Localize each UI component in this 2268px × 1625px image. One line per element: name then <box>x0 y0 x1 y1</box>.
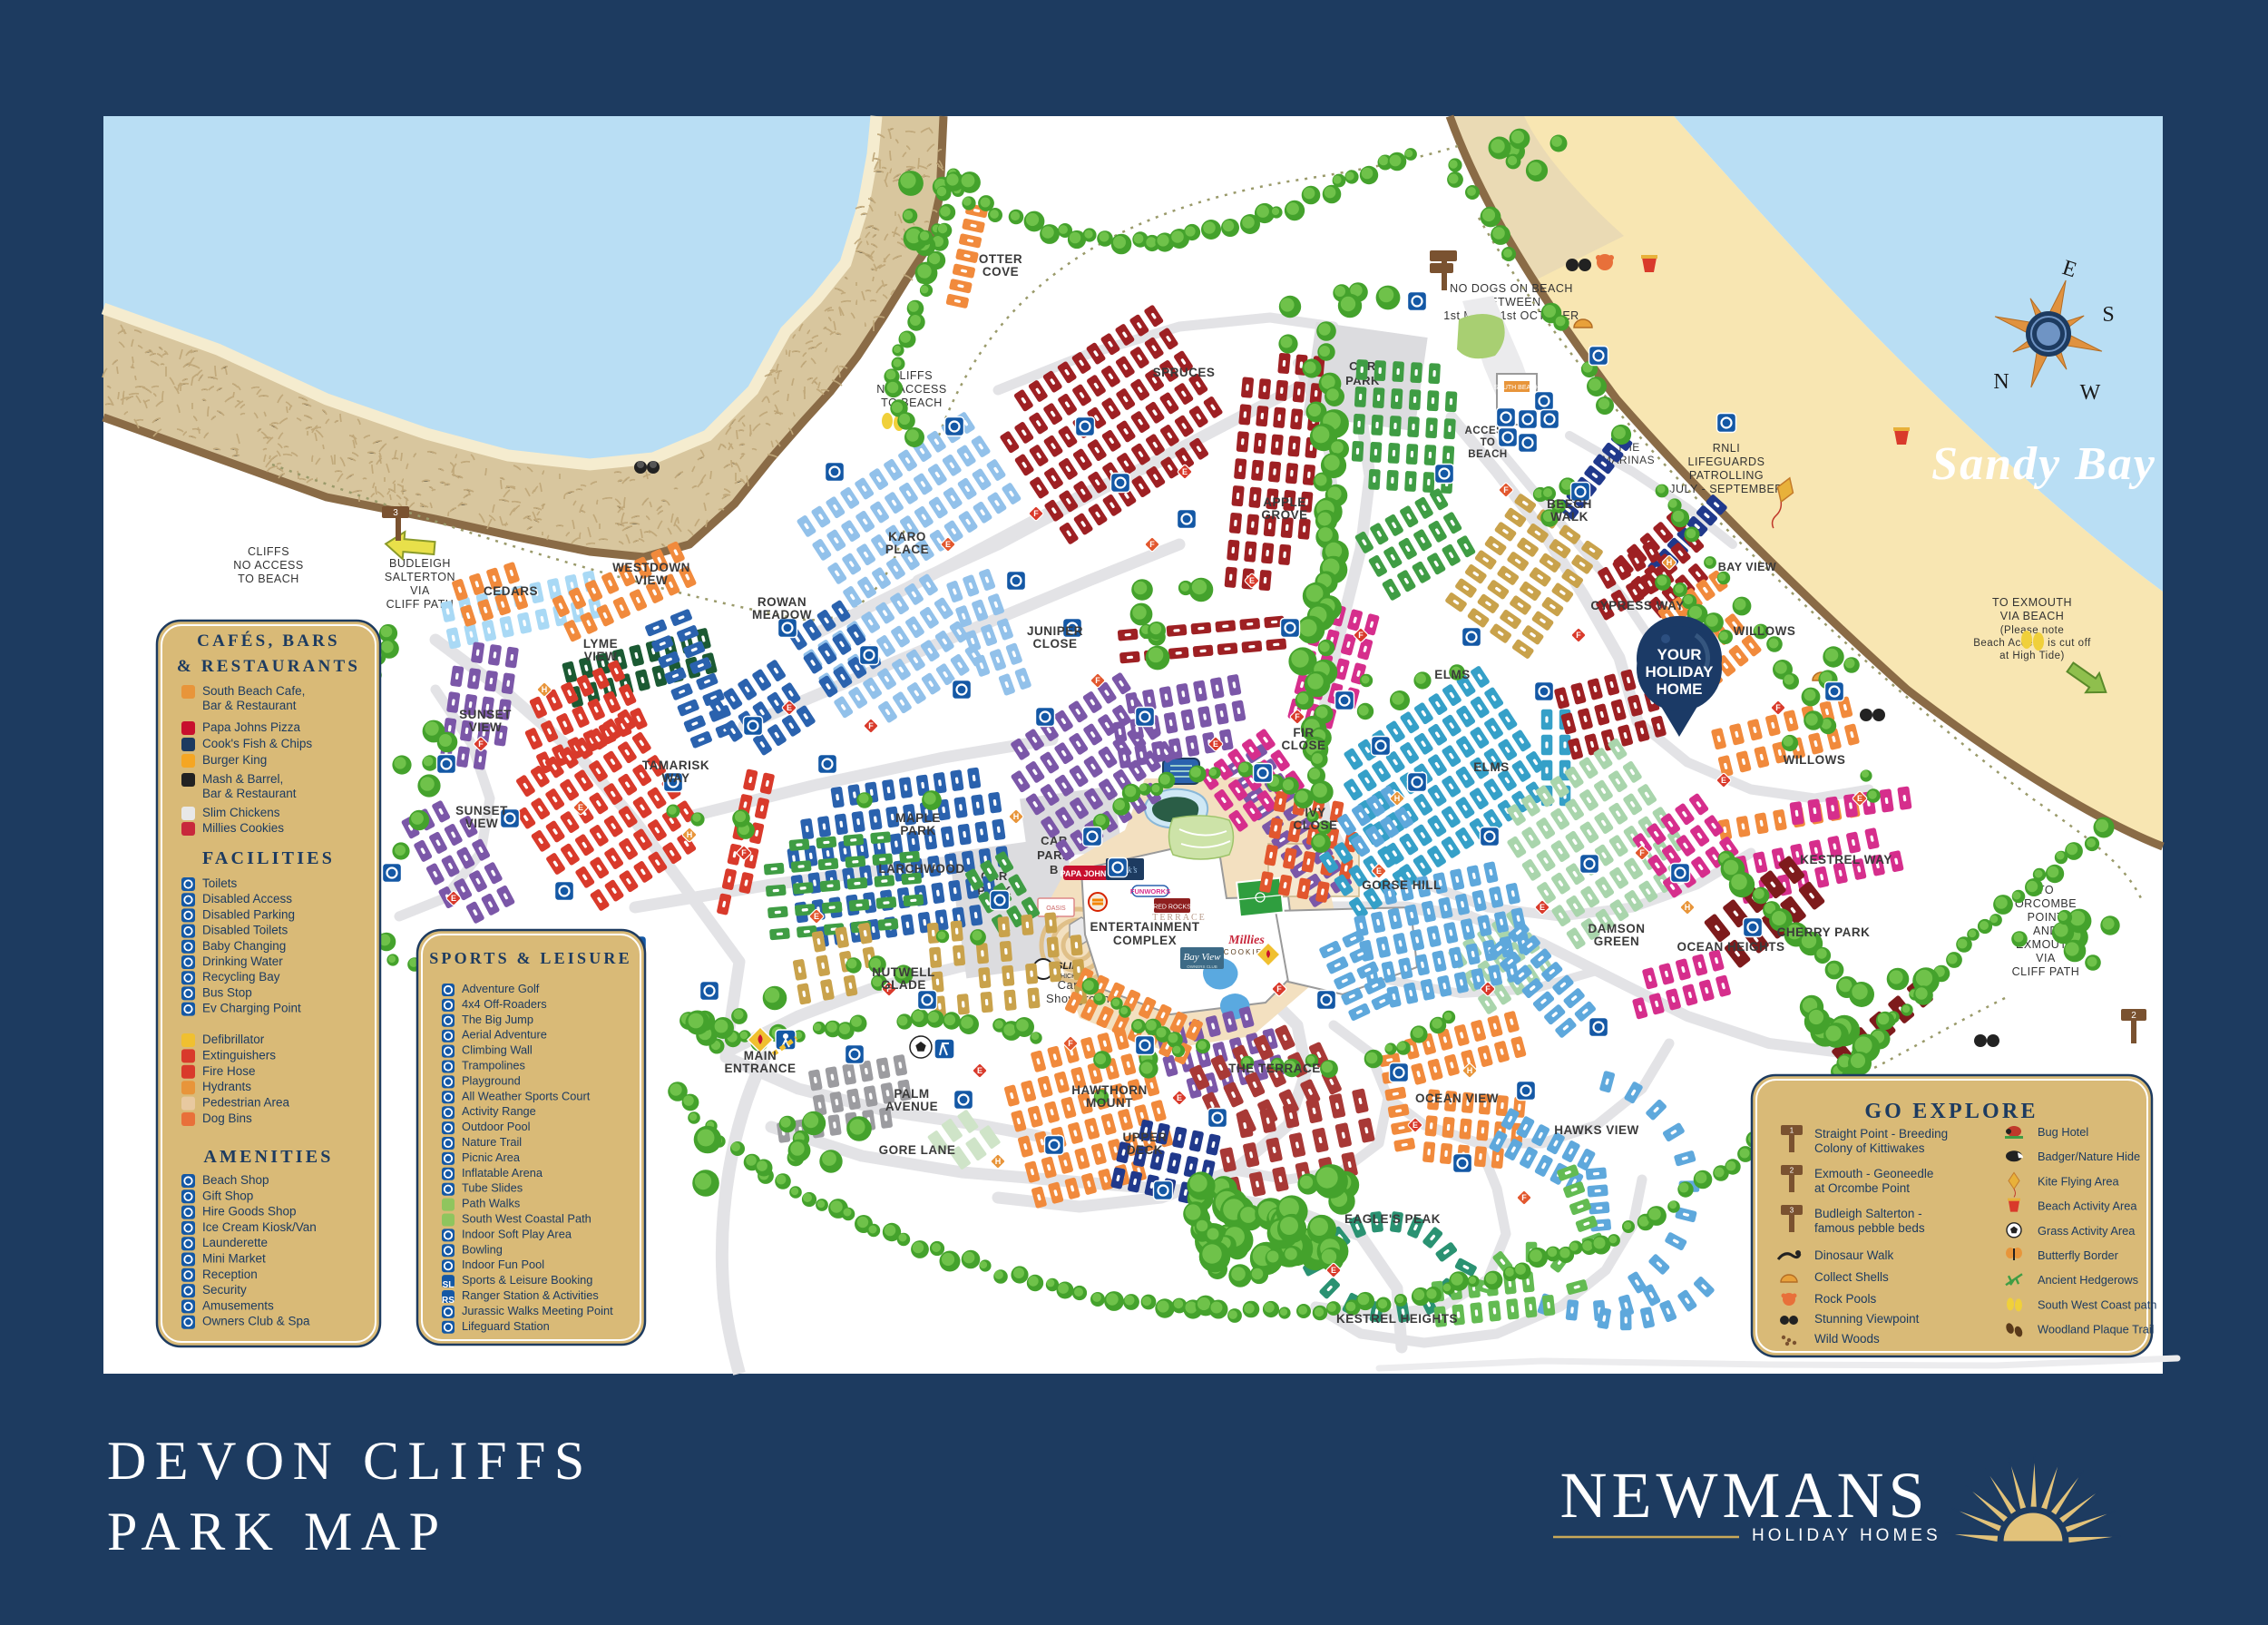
svg-text:at Orcombe Point: at Orcombe Point <box>1814 1181 1910 1195</box>
svg-text:Drinking Water: Drinking Water <box>202 954 283 968</box>
svg-text:Picnic Area: Picnic Area <box>462 1150 521 1164</box>
svg-text:CHERRY PARK: CHERRY PARK <box>1777 925 1871 939</box>
svg-text:& RESTAURANTS: & RESTAURANTS <box>177 657 360 676</box>
svg-text:RED ROCKS: RED ROCKS <box>1153 905 1191 911</box>
svg-text:Mini Market: Mini Market <box>202 1252 266 1266</box>
svg-text:Ev Charging Point: Ev Charging Point <box>202 1002 301 1015</box>
svg-text:Toilets: Toilets <box>202 876 238 890</box>
svg-text:H: H <box>1394 794 1401 803</box>
svg-text:Mash & Barrel,: Mash & Barrel, <box>202 772 283 786</box>
svg-text:Bar & Restaurant: Bar & Restaurant <box>202 699 297 712</box>
svg-text:BUDLEIGH: BUDLEIGH <box>389 557 451 570</box>
svg-text:ELMS: ELMS <box>1434 668 1471 681</box>
svg-text:NUTWELL: NUTWELL <box>872 965 934 979</box>
svg-text:Extinguishers: Extinguishers <box>202 1048 276 1062</box>
svg-text:FIR: FIR <box>1293 726 1314 739</box>
svg-text:Bug Hotel: Bug Hotel <box>2038 1125 2088 1139</box>
svg-text:KESTREL HEIGHTS: KESTREL HEIGHTS <box>1336 1312 1458 1326</box>
svg-text:COMPLEX: COMPLEX <box>1113 934 1177 947</box>
svg-text:ROWAN: ROWAN <box>758 595 807 609</box>
svg-text:DECK: DECK <box>1127 1143 1163 1157</box>
svg-text:HOME: HOME <box>1657 680 1703 698</box>
svg-text:F: F <box>741 848 747 857</box>
svg-text:S: S <box>2102 303 2114 327</box>
svg-text:TERRACE: TERRACE <box>1152 913 1207 923</box>
svg-text:CLIFF PATH: CLIFF PATH <box>2012 965 2080 978</box>
svg-text:B: B <box>1050 863 1059 876</box>
svg-text:NEWMANS: NEWMANS <box>1560 1459 1930 1532</box>
svg-text:F: F <box>478 739 484 749</box>
svg-text:E: E <box>945 540 951 549</box>
svg-text:F: F <box>1149 540 1155 549</box>
svg-text:YOUR: YOUR <box>1657 646 1701 663</box>
svg-text:F: F <box>868 721 874 730</box>
svg-text:Pedestrian Area: Pedestrian Area <box>202 1096 290 1110</box>
svg-text:AMENITIES: AMENITIES <box>203 1147 333 1167</box>
svg-text:SOUTH BEACH: SOUTH BEACH <box>1494 385 1540 391</box>
svg-text:E: E <box>1413 1121 1418 1130</box>
svg-text:South Beach Cafe,: South Beach Cafe, <box>202 684 305 698</box>
svg-text:TO: TO <box>1481 437 1496 448</box>
svg-text:VIEW: VIEW <box>465 817 499 830</box>
svg-text:Ancient Hedgerows: Ancient Hedgerows <box>2038 1273 2138 1287</box>
svg-text:at High Tide): at High Tide) <box>1999 651 2065 661</box>
svg-text:GREEN: GREEN <box>1594 935 1640 948</box>
svg-text:Beach Activity Area: Beach Activity Area <box>2038 1199 2137 1213</box>
svg-text:Slim Chickens: Slim Chickens <box>202 806 280 819</box>
svg-text:OCEAN HEIGHTS: OCEAN HEIGHTS <box>1677 940 1784 954</box>
svg-text:CLOSE: CLOSE <box>1281 739 1325 752</box>
svg-text:VIA BEACH: VIA BEACH <box>2000 610 2065 622</box>
svg-text:NO ACCESS: NO ACCESS <box>233 559 303 572</box>
svg-text:Activity Range: Activity Range <box>462 1104 536 1118</box>
svg-text:Wild Woods: Wild Woods <box>1814 1332 1880 1346</box>
svg-text:MAPLE: MAPLE <box>895 811 941 825</box>
svg-text:WAY: WAY <box>661 771 689 785</box>
svg-text:HOLIDAY: HOLIDAY <box>1646 663 1715 680</box>
svg-text:TO BEACH: TO BEACH <box>238 573 299 585</box>
svg-text:Adventure Golf: Adventure Golf <box>462 982 540 995</box>
svg-text:CYPRESS WAY: CYPRESS WAY <box>1590 599 1684 612</box>
svg-text:PATROLLING: PATROLLING <box>1689 469 1764 482</box>
svg-text:All Weather Sports Court: All Weather Sports Court <box>462 1089 591 1102</box>
svg-text:H: H <box>1467 1066 1473 1075</box>
svg-text:HAWTHORN: HAWTHORN <box>1071 1083 1148 1097</box>
svg-text:Burger King: Burger King <box>202 753 267 767</box>
svg-text:Dog Bins: Dog Bins <box>202 1111 252 1125</box>
svg-text:COVE: COVE <box>982 265 1019 279</box>
svg-text:F: F <box>1033 509 1039 518</box>
svg-text:SUNSET: SUNSET <box>455 804 508 817</box>
svg-text:RNLI: RNLI <box>1713 442 1740 455</box>
svg-text:CEDARS: CEDARS <box>484 584 538 598</box>
svg-text:Colony of Kittiwakes: Colony of Kittiwakes <box>1814 1141 1925 1155</box>
svg-text:JULY - SEPTEMBER: JULY - SEPTEMBER <box>1669 483 1784 495</box>
svg-text:E: E <box>1182 467 1188 476</box>
svg-text:Trampolines: Trampolines <box>462 1059 525 1072</box>
svg-text:Reception: Reception <box>202 1268 258 1281</box>
svg-text:OWNERS CLUB: OWNERS CLUB <box>1187 964 1217 969</box>
svg-text:E: E <box>977 1066 982 1075</box>
svg-text:KESTREL WAY: KESTREL WAY <box>1800 853 1892 866</box>
svg-text:Amusements: Amusements <box>202 1298 274 1312</box>
svg-text:SL: SL <box>443 1280 455 1290</box>
svg-text:LIFEGUARDS: LIFEGUARDS <box>1688 455 1765 468</box>
svg-text:GORE LANE: GORE LANE <box>879 1143 956 1157</box>
svg-text:E: E <box>451 894 456 903</box>
svg-text:F: F <box>1095 676 1100 685</box>
svg-text:Indoor Fun Pool: Indoor Fun Pool <box>462 1258 544 1271</box>
svg-text:Lifeguard Station: Lifeguard Station <box>462 1319 550 1333</box>
svg-text:Defibrillator: Defibrillator <box>202 1033 265 1046</box>
svg-text:AVENUE: AVENUE <box>885 1100 938 1113</box>
svg-text:E: E <box>1213 739 1218 749</box>
svg-text:Indoor Soft Play Area: Indoor Soft Play Area <box>462 1227 572 1240</box>
svg-text:3: 3 <box>1790 1207 1794 1215</box>
svg-text:KARO: KARO <box>888 530 926 543</box>
svg-text:GORSE HILL: GORSE HILL <box>1362 878 1442 892</box>
svg-text:E: E <box>578 803 583 812</box>
svg-text:VIA: VIA <box>2036 952 2056 964</box>
svg-text:E: E <box>787 703 792 712</box>
svg-text:CLOSE: CLOSE <box>1032 637 1077 651</box>
svg-text:Gift Shop: Gift Shop <box>202 1189 253 1202</box>
svg-text:F: F <box>1358 631 1364 640</box>
svg-text:Stunning Viewpoint: Stunning Viewpoint <box>1814 1312 1920 1326</box>
svg-text:F: F <box>1639 848 1645 857</box>
svg-text:3: 3 <box>393 508 398 518</box>
svg-text:E: E <box>1249 576 1255 585</box>
svg-text:E: E <box>814 912 819 921</box>
svg-text:E: E <box>1376 866 1382 876</box>
svg-text:H: H <box>1013 812 1020 821</box>
svg-text:PARK MAP: PARK MAP <box>107 1502 448 1561</box>
svg-text:Tube Slides: Tube Slides <box>462 1181 523 1195</box>
svg-text:H: H <box>1685 903 1691 912</box>
svg-text:Bus Stop: Bus Stop <box>202 985 252 999</box>
svg-text:RS: RS <box>442 1296 455 1306</box>
svg-text:2: 2 <box>2131 1011 2136 1021</box>
svg-text:MOUNT: MOUNT <box>1086 1096 1133 1110</box>
svg-text:Security: Security <box>202 1283 247 1297</box>
svg-text:Sports & Leisure Booking: Sports & Leisure Booking <box>462 1273 592 1287</box>
svg-text:VIEW: VIEW <box>469 720 503 734</box>
svg-text:Hydrants: Hydrants <box>202 1080 251 1093</box>
svg-text:E: E <box>1721 776 1726 785</box>
svg-text:Ranger Station & Activities: Ranger Station & Activities <box>462 1288 599 1302</box>
svg-text:SUNSET: SUNSET <box>459 708 512 721</box>
svg-text:Playground: Playground <box>462 1073 521 1087</box>
svg-text:N: N <box>1993 370 2009 394</box>
svg-text:H: H <box>1667 558 1673 567</box>
svg-text:E: E <box>1331 1266 1336 1275</box>
svg-text:TO EXMOUTH: TO EXMOUTH <box>1992 596 2072 609</box>
svg-text:Kite Flying Area: Kite Flying Area <box>2038 1174 2120 1188</box>
svg-text:Papa Johns Pizza: Papa Johns Pizza <box>202 720 301 734</box>
svg-text:Bowling: Bowling <box>462 1242 503 1256</box>
svg-text:CLOSE: CLOSE <box>1293 818 1337 832</box>
svg-text:4x4 Off-Roaders: 4x4 Off-Roaders <box>462 997 547 1011</box>
svg-text:Grass Activity Area: Grass Activity Area <box>2038 1224 2136 1238</box>
svg-text:F: F <box>1276 984 1282 994</box>
svg-text:SPORTS & LEISURE: SPORTS & LEISURE <box>429 949 632 967</box>
svg-text:Straight Point - Breeding: Straight Point - Breeding <box>1814 1127 1948 1140</box>
svg-text:Baby Changing: Baby Changing <box>202 939 286 953</box>
svg-text:VIA: VIA <box>410 584 430 597</box>
svg-text:Rock Pools: Rock Pools <box>1814 1292 1877 1306</box>
svg-text:2: 2 <box>1790 1167 1794 1175</box>
svg-text:GO EXPLORE: GO EXPLORE <box>1864 1100 2038 1123</box>
svg-text:HAWKS VIEW: HAWKS VIEW <box>1554 1123 1639 1137</box>
svg-text:OCEAN VIEW: OCEAN VIEW <box>1415 1091 1499 1105</box>
svg-text:Cook's Fish & Chips: Cook's Fish & Chips <box>202 737 312 750</box>
svg-text:The Big Jump: The Big Jump <box>462 1013 533 1026</box>
svg-text:Fire Hose: Fire Hose <box>202 1064 256 1078</box>
svg-text:South West Coastal Path: South West Coastal Path <box>462 1212 591 1226</box>
svg-text:Exmouth - Geoneedle: Exmouth - Geoneedle <box>1814 1167 1933 1180</box>
svg-text:EAGLE'S PEAK: EAGLE'S PEAK <box>1344 1212 1441 1226</box>
svg-text:W: W <box>2080 381 2101 405</box>
svg-text:NO DOGS ON BEACH: NO DOGS ON BEACH <box>1450 282 1573 295</box>
svg-text:Path Walks: Path Walks <box>462 1197 520 1210</box>
svg-text:DAMSON: DAMSON <box>1589 922 1646 935</box>
svg-text:E: E <box>1857 794 1862 803</box>
svg-text:TAMARISK: TAMARISK <box>642 759 709 772</box>
svg-text:HOLIDAY HOMES: HOLIDAY HOMES <box>1752 1526 1941 1545</box>
svg-text:F: F <box>1521 1193 1527 1202</box>
svg-text:THE TERRACE: THE TERRACE <box>1228 1062 1321 1075</box>
svg-text:Millies Cookies: Millies Cookies <box>202 821 284 835</box>
svg-text:Owners Club & Spa: Owners Club & Spa <box>202 1315 310 1328</box>
svg-text:SPRUCES: SPRUCES <box>1153 366 1216 379</box>
svg-text:Butterfly Border: Butterfly Border <box>2038 1248 2119 1262</box>
svg-text:GLADE: GLADE <box>881 978 926 992</box>
svg-text:Disabled Access: Disabled Access <box>202 892 292 905</box>
svg-text:Bay View: Bay View <box>1183 952 1221 963</box>
svg-text:Budleigh Salterton -: Budleigh Salterton - <box>1814 1207 1922 1220</box>
svg-text:TO BEACH: TO BEACH <box>881 396 943 409</box>
svg-text:Launderette: Launderette <box>202 1236 268 1249</box>
svg-text:MEADOW: MEADOW <box>752 608 812 622</box>
svg-text:E: E <box>1540 903 1545 912</box>
svg-text:Recycling Bay: Recycling Bay <box>202 970 280 984</box>
svg-text:DEVON CLIFFS: DEVON CLIFFS <box>107 1431 593 1491</box>
svg-text:Nature Trail: Nature Trail <box>462 1135 522 1149</box>
svg-text:BAY VIEW: BAY VIEW <box>1718 561 1776 573</box>
svg-text:PLACE: PLACE <box>885 543 929 556</box>
svg-text:Sandy Bay: Sandy Bay <box>1931 438 2156 490</box>
svg-text:SALTERTON: SALTERTON <box>385 571 455 583</box>
svg-text:Aerial Adventure: Aerial Adventure <box>462 1028 547 1042</box>
svg-text:famous pebble beds: famous pebble beds <box>1814 1221 1925 1235</box>
svg-text:PAPA JOHNS: PAPA JOHNS <box>1061 869 1112 878</box>
svg-text:Ice Cream Kiosk/Van: Ice Cream Kiosk/Van <box>202 1220 317 1234</box>
svg-text:Climbing Wall: Climbing Wall <box>462 1043 533 1057</box>
svg-text:(Please note: (Please note <box>2000 625 2065 636</box>
svg-text:Beach Shop: Beach Shop <box>202 1173 269 1187</box>
svg-text:ENTRANCE: ENTRANCE <box>724 1062 796 1075</box>
svg-text:F: F <box>1068 1039 1073 1048</box>
svg-text:UPPER: UPPER <box>1122 1131 1167 1144</box>
svg-text:H: H <box>995 1157 1002 1166</box>
svg-text:OTTER: OTTER <box>979 252 1022 266</box>
svg-text:GROVE: GROVE <box>1261 508 1307 522</box>
svg-text:Millies: Millies <box>1227 934 1265 947</box>
svg-text:MAIN: MAIN <box>744 1049 777 1062</box>
svg-text:APPLE: APPLE <box>1263 495 1306 509</box>
svg-text:H: H <box>687 830 693 839</box>
svg-text:Badger/Nature Hide: Badger/Nature Hide <box>2038 1150 2140 1163</box>
svg-text:WILLOWS: WILLOWS <box>1734 624 1796 638</box>
svg-text:VIEW: VIEW <box>584 650 618 663</box>
svg-text:LYME: LYME <box>583 637 618 651</box>
svg-text:LARCHWOOD: LARCHWOOD <box>878 862 964 876</box>
svg-text:E: E <box>1177 1093 1182 1102</box>
svg-text:WILLOWS: WILLOWS <box>1784 753 1846 767</box>
svg-text:CLIFFS: CLIFFS <box>248 545 289 558</box>
svg-text:BEECH: BEECH <box>1547 497 1592 511</box>
svg-text:F: F <box>1485 984 1491 994</box>
svg-text:Jurassic Walks Meeting Point: Jurassic Walks Meeting Point <box>462 1304 613 1317</box>
svg-text:CAFÉS, BARS: CAFÉS, BARS <box>197 631 340 651</box>
svg-text:F: F <box>1295 712 1300 721</box>
svg-text:Woodland Plaque Trail: Woodland Plaque Trail <box>2038 1323 2155 1336</box>
svg-text:JUNIPER: JUNIPER <box>1027 624 1083 638</box>
svg-text:H: H <box>542 685 548 694</box>
svg-text:PARK: PARK <box>900 824 935 837</box>
svg-text:WALK: WALK <box>1550 510 1589 524</box>
svg-text:FACILITIES: FACILITIES <box>202 848 335 868</box>
svg-text:Disabled Toilets: Disabled Toilets <box>202 924 288 937</box>
svg-text:Disabled Parking: Disabled Parking <box>202 907 295 921</box>
svg-text:1: 1 <box>1790 1127 1794 1135</box>
svg-text:Dinosaur Walk: Dinosaur Walk <box>1814 1248 1894 1262</box>
svg-text:Beach Access is cut off: Beach Access is cut off <box>1973 638 2091 649</box>
svg-text:VIEW: VIEW <box>635 573 669 587</box>
svg-text:F: F <box>1576 631 1581 640</box>
svg-text:Collect Shells: Collect Shells <box>1814 1270 1889 1284</box>
svg-text:Inflatable Arena: Inflatable Arena <box>462 1166 543 1180</box>
svg-text:BEACH: BEACH <box>1468 449 1507 460</box>
svg-text:F: F <box>1775 703 1781 712</box>
svg-text:South West Coast path: South West Coast path <box>2038 1297 2156 1311</box>
svg-text:ELMS: ELMS <box>1473 760 1510 774</box>
svg-text:Outdoor Pool: Outdoor Pool <box>462 1120 530 1133</box>
svg-text:WESTDOWN: WESTDOWN <box>612 561 690 574</box>
svg-text:FUNWORKS: FUNWORKS <box>1130 887 1170 896</box>
svg-text:OASIS: OASIS <box>1046 905 1066 912</box>
svg-text:IVY: IVY <box>1305 806 1325 819</box>
svg-text:PALM: PALM <box>894 1087 929 1101</box>
svg-text:Hire Goods Shop: Hire Goods Shop <box>202 1205 297 1219</box>
svg-text:Bar & Restaurant: Bar & Restaurant <box>202 787 297 800</box>
svg-text:F: F <box>1503 485 1509 494</box>
